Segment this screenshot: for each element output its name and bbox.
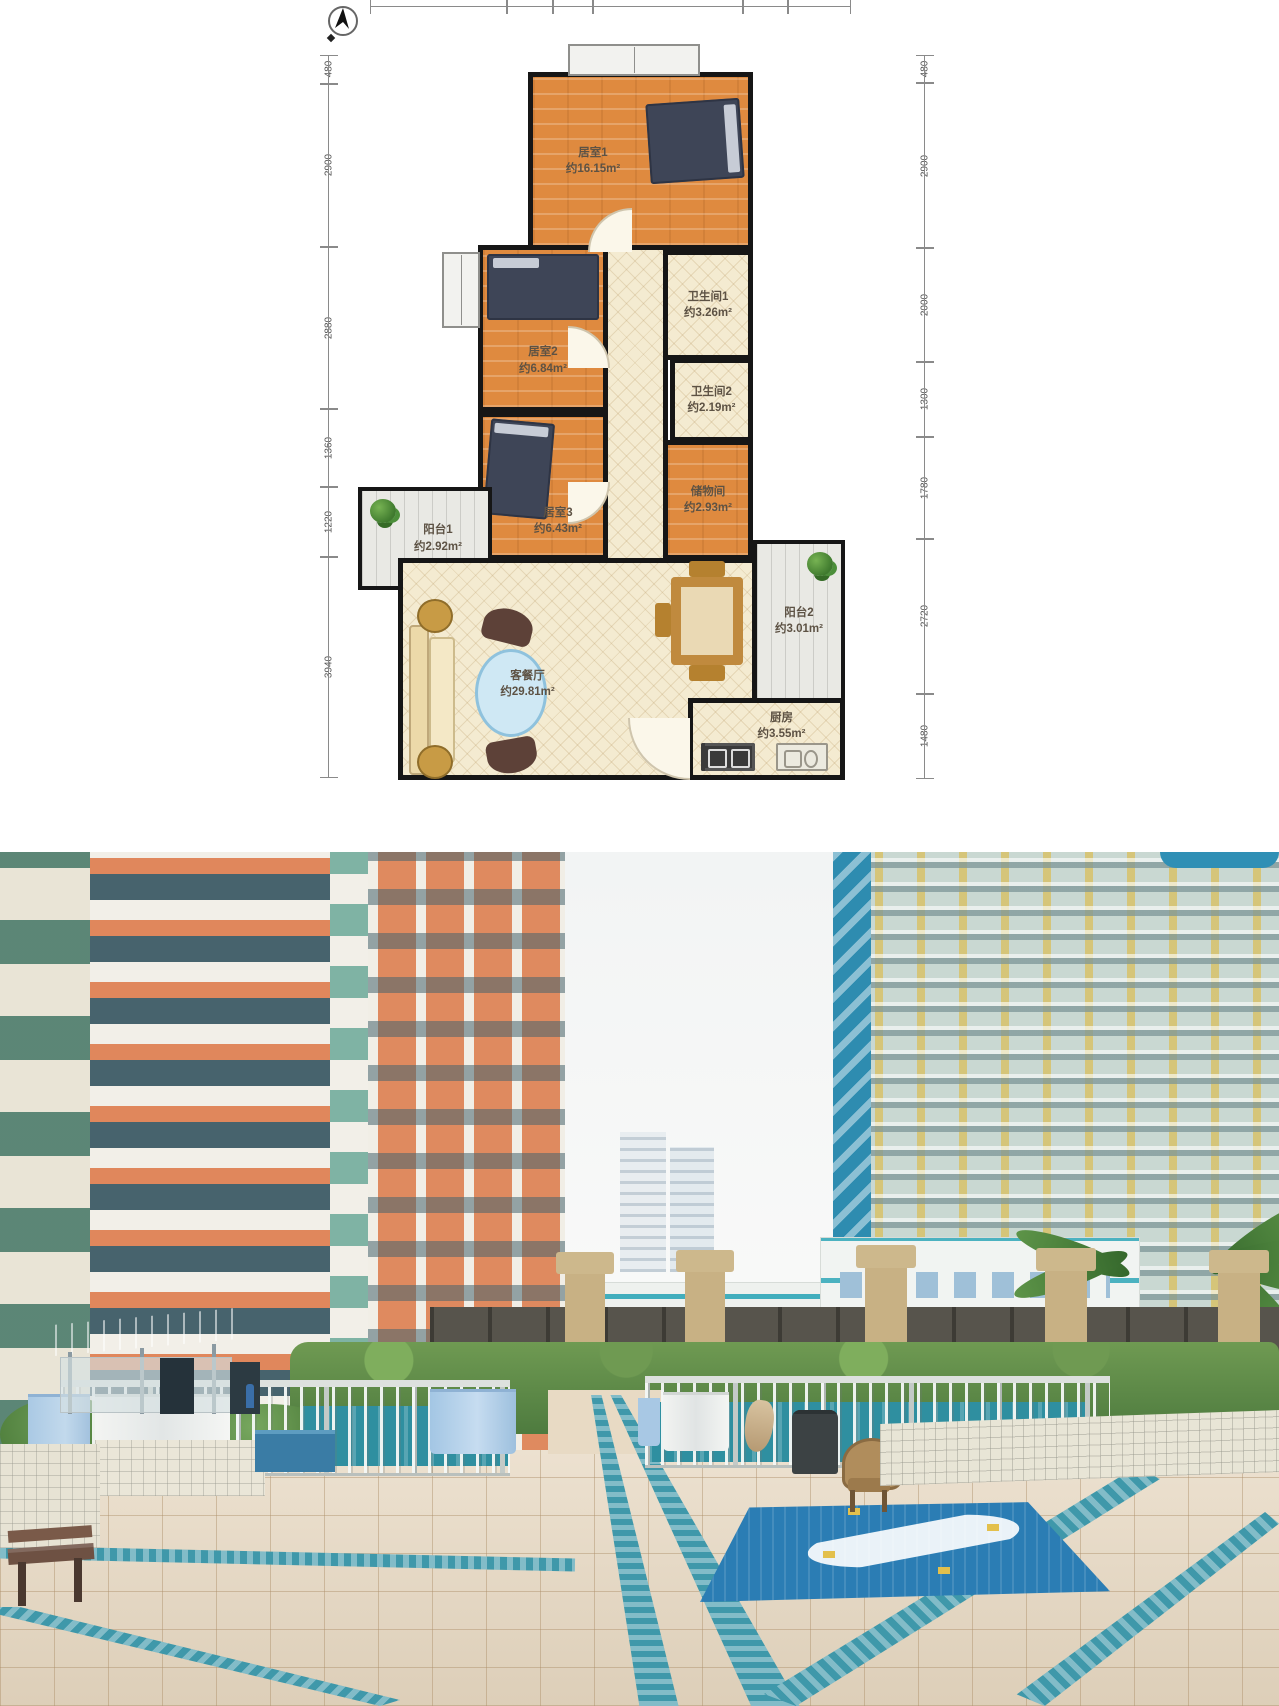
hallway xyxy=(602,245,668,595)
dining-chair xyxy=(689,665,725,681)
room-bedroom2: 居室2 约6.84m² xyxy=(478,245,608,412)
potted-plant xyxy=(807,552,833,576)
planter-tile-wall-left xyxy=(95,1440,265,1496)
dim-label: 649 xyxy=(755,0,776,1)
dim-label: 1780 xyxy=(920,475,931,501)
room-label: 储物间 约2.93m² xyxy=(684,484,732,516)
ruler-left: 480 2900 2880 1360 1220 3940 xyxy=(320,55,338,778)
room-label: 阳台2 约3.01m² xyxy=(775,605,823,637)
dim-segment: 2249 xyxy=(593,0,742,14)
dim-segment: 480 xyxy=(320,55,338,84)
towel-blue xyxy=(430,1392,516,1454)
room-label: 厨房 约3.55m² xyxy=(758,710,806,742)
dim-segment: 1300 xyxy=(916,362,934,437)
pool-mosaic-medallion xyxy=(700,1467,1110,1602)
dim-label: 1480 xyxy=(920,723,931,749)
dark-chair xyxy=(792,1410,838,1474)
dim-label: 580 xyxy=(563,0,584,1)
bay-window xyxy=(568,44,700,76)
ruler-top: 2060 680 580 2249 649 940 xyxy=(370,0,851,14)
potted-plant xyxy=(370,499,396,523)
bed xyxy=(487,254,599,320)
dim-segment: 2000 xyxy=(916,248,934,362)
dim-segment: 480 xyxy=(916,55,934,83)
dim-segment: 2880 xyxy=(320,247,338,409)
courtyard-photo xyxy=(0,852,1279,1706)
bay-window xyxy=(442,252,480,328)
bed xyxy=(645,98,744,184)
sink xyxy=(776,743,828,771)
ruler-right: 480 2900 2000 1300 1780 2720 1480 xyxy=(916,55,934,779)
dim-segment: 2900 xyxy=(320,84,338,247)
dim-segment: 1480 xyxy=(916,694,934,779)
dim-label: 680 xyxy=(520,0,541,1)
dining-chair xyxy=(655,603,671,637)
dim-label: 2249 xyxy=(655,0,681,1)
dim-label: 2900 xyxy=(324,152,335,178)
dim-segment: 680 xyxy=(507,0,554,14)
room-label: 客餐厅 约29.81m² xyxy=(500,668,554,700)
entrance-door xyxy=(160,1358,194,1414)
tower-roof-canopy xyxy=(1160,852,1279,868)
room-label: 居室3 约6.43m² xyxy=(534,505,582,537)
dim-segment: 2900 xyxy=(916,83,934,248)
dim-label: 480 xyxy=(920,59,931,80)
distant-tower xyxy=(620,1132,666,1272)
dim-label: 2900 xyxy=(920,153,931,179)
room-kitchen: 厨房 约3.55m² xyxy=(688,698,845,780)
listing-page: { "floorplan": { "compass_icon": "north-… xyxy=(0,0,1279,1706)
dim-label: 1220 xyxy=(324,509,335,535)
room-balcony2: 阳台2 约3.01m² xyxy=(753,540,845,702)
blue-planter-box xyxy=(255,1430,335,1472)
dim-segment: 1360 xyxy=(320,409,338,487)
room-label: 阳台1 约2.92m² xyxy=(414,522,462,554)
dim-segment: 2720 xyxy=(916,539,934,694)
dim-segment: 3940 xyxy=(320,557,338,778)
dim-segment: 2060 xyxy=(370,0,507,14)
round-ottoman xyxy=(417,745,453,779)
bench xyxy=(8,1528,98,1628)
stove xyxy=(701,743,755,771)
entrance-glass xyxy=(60,1357,232,1413)
room-label: 卫生间2 约2.19m² xyxy=(688,384,736,416)
dining-chair xyxy=(689,561,725,577)
person-figure xyxy=(246,1384,254,1408)
room-bath1: 卫生间1 约3.26m² xyxy=(663,250,753,360)
dim-label: 1300 xyxy=(920,386,931,412)
entrance-door xyxy=(230,1362,260,1414)
dim-segment: 1220 xyxy=(320,487,338,557)
dim-segment: 1780 xyxy=(916,437,934,539)
dim-label: 2060 xyxy=(425,0,451,1)
dim-segment: 649 xyxy=(743,0,788,14)
towel-white xyxy=(663,1395,729,1451)
room-label: 居室1 约16.15m² xyxy=(566,145,620,177)
dining-table xyxy=(671,577,743,665)
dim-label: 940 xyxy=(809,0,830,1)
room-label: 居室2 约6.84m² xyxy=(519,344,567,376)
dim-label: 480 xyxy=(324,59,335,80)
room-bedroom1: 居室1 约16.15m² xyxy=(528,72,753,250)
dim-label: 1360 xyxy=(324,435,335,461)
dim-label: 3940 xyxy=(324,654,335,680)
dim-segment: 940 xyxy=(788,0,851,14)
dim-label: 2000 xyxy=(920,292,931,318)
dim-label: 2880 xyxy=(324,315,335,341)
floorplan: 居室1 约16.15m² 卫生间1 约3.26m² 居室2 约6.84m² 卫生… xyxy=(340,30,855,780)
dim-segment: 580 xyxy=(553,0,593,14)
dim-label: 2720 xyxy=(920,603,931,629)
round-ottoman xyxy=(417,599,453,633)
room-bath2: 卫生间2 约2.19m² xyxy=(670,358,753,442)
towel-blue-small xyxy=(638,1398,660,1446)
armchair xyxy=(480,603,537,648)
armchair xyxy=(484,735,539,777)
room-label: 卫生间1 约3.26m² xyxy=(684,289,732,321)
room-storage: 储物间 约2.93m² xyxy=(663,440,753,560)
